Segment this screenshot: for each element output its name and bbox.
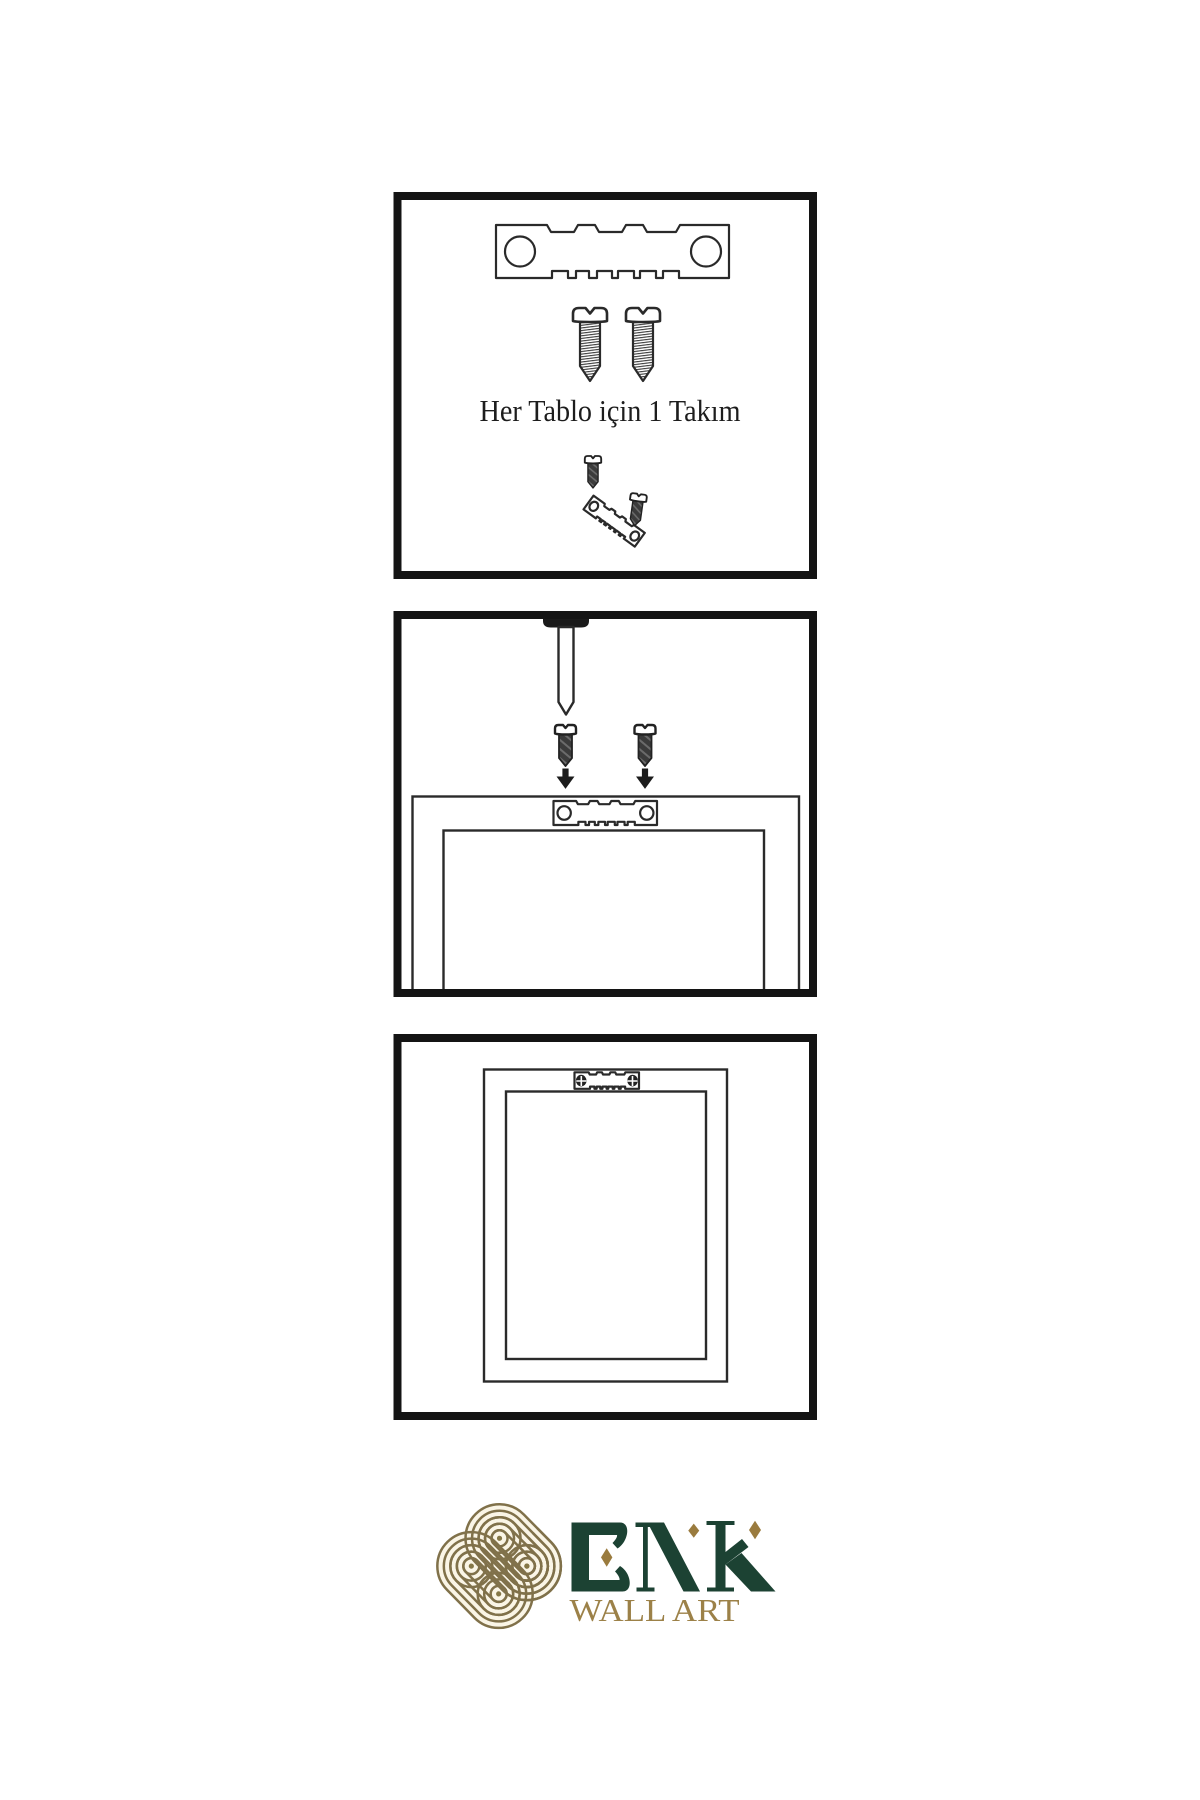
svg-text:Her Tablo için 1 Takım: Her Tablo için 1 Takım <box>480 393 741 428</box>
svg-text:WALL ART: WALL ART <box>570 1592 740 1628</box>
